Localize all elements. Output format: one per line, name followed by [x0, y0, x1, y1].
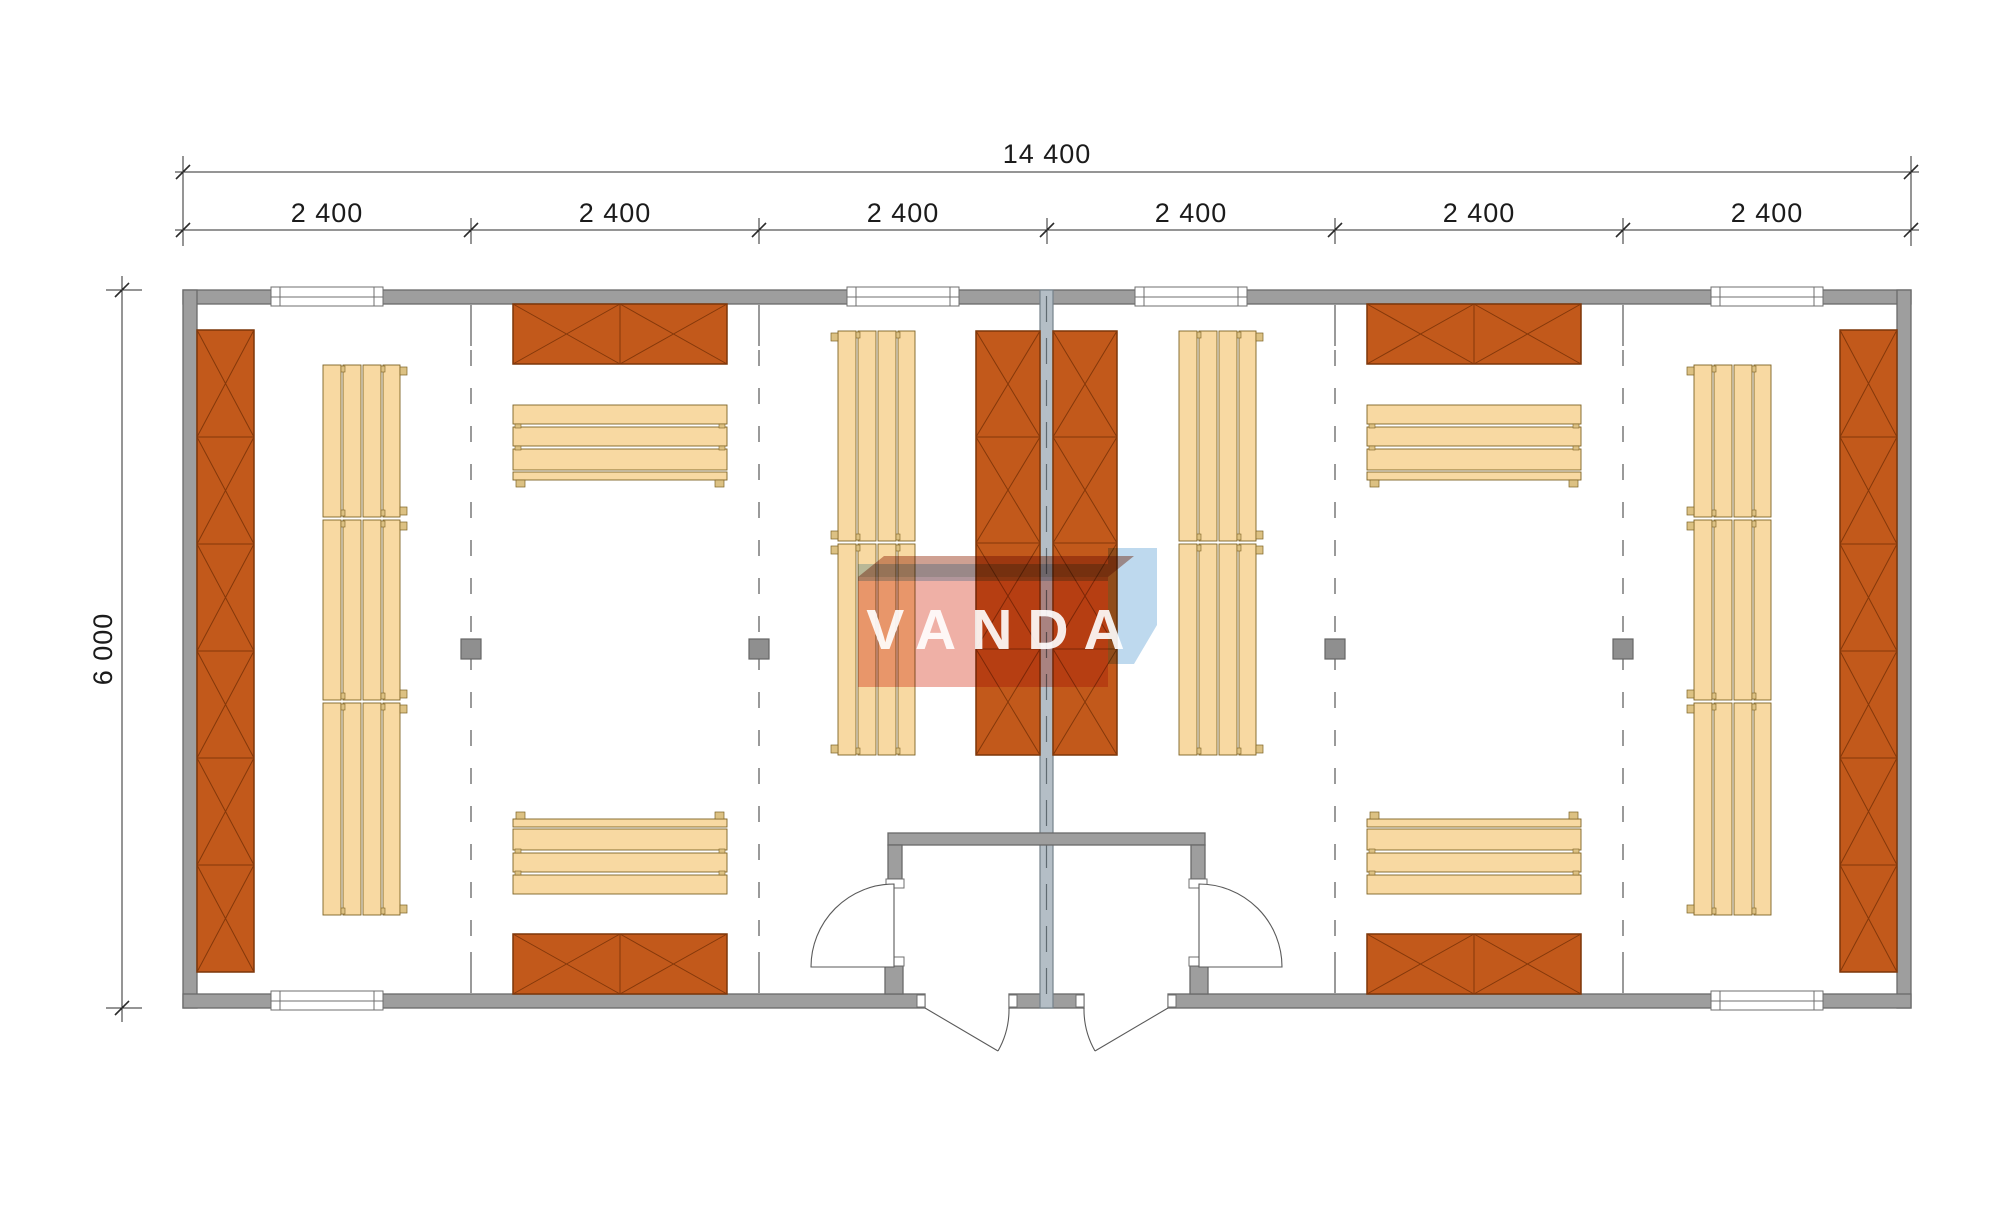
bench-foot	[1256, 745, 1263, 753]
bench-foot	[400, 507, 407, 515]
bench-foot	[831, 745, 838, 753]
bench-foot	[400, 690, 407, 698]
bench-foot	[516, 480, 525, 487]
wall-left	[183, 290, 197, 1008]
structural-post	[1325, 639, 1345, 659]
bench-foot	[715, 480, 724, 487]
window	[1711, 991, 1823, 1010]
watermark-red-top-shape	[858, 556, 1134, 577]
bench-foot	[1256, 531, 1263, 539]
bench-foot	[715, 812, 724, 819]
overall-width-label: 14 400	[1003, 139, 1092, 169]
wardrobe-cabinet	[197, 330, 254, 972]
bench-foot	[1687, 690, 1694, 698]
bench-vertical	[323, 365, 407, 915]
bench-vertical	[831, 331, 915, 755]
floor-plan-drawing: 14 400 2 400 2 400 2 400 2 400 2 400 2 4…	[0, 0, 2000, 1226]
bench-horizontal	[1367, 405, 1581, 487]
bench-foot	[1370, 812, 1379, 819]
bench-foot	[1687, 367, 1694, 375]
module-width-label-5: 2 400	[1443, 198, 1516, 228]
bench-foot	[1370, 480, 1379, 487]
bench-vertical	[1687, 365, 1771, 915]
vestibule-wall-stub	[1191, 845, 1205, 879]
bench-foot	[1687, 705, 1694, 713]
bench-foot	[831, 546, 838, 554]
wardrobe-cabinet	[1367, 934, 1581, 994]
wardrobe-cabinet	[976, 331, 1040, 755]
module-width-label-4: 2 400	[1155, 198, 1228, 228]
door-frame	[1076, 995, 1084, 1007]
structural-post	[749, 639, 769, 659]
window	[271, 287, 383, 306]
bench-foot	[400, 522, 407, 530]
watermark-text: VANDA	[866, 598, 1139, 662]
bench-foot	[1687, 507, 1694, 515]
bench-foot	[1569, 480, 1578, 487]
bench-horizontal	[513, 405, 727, 487]
bench-foot	[400, 905, 407, 913]
bench-foot	[1569, 812, 1578, 819]
window	[1135, 287, 1247, 306]
module-dimension-line	[175, 218, 1919, 244]
bench-vertical	[1179, 331, 1263, 755]
floor-plan-page: 14 400 2 400 2 400 2 400 2 400 2 400 2 4…	[0, 0, 2000, 1226]
window	[271, 991, 383, 1010]
wall-right	[1897, 290, 1911, 1008]
exterior-door-swing-left	[925, 1008, 1009, 1051]
exterior-door-swing-right	[1084, 1008, 1168, 1051]
door-frame	[1168, 995, 1176, 1007]
vestibule-wall	[888, 833, 1205, 845]
module-width-label-1: 2 400	[291, 198, 364, 228]
vestibule-wall-stub	[888, 845, 902, 879]
bench-foot	[400, 367, 407, 375]
bench-foot	[516, 812, 525, 819]
wardrobe-cabinet	[1840, 330, 1897, 972]
interior-door-swing-right	[1199, 884, 1282, 967]
bench-foot	[1256, 546, 1263, 554]
bench-horizontal	[1367, 812, 1581, 894]
door-pilaster	[1190, 966, 1208, 994]
bench-horizontal	[513, 812, 727, 894]
wardrobe-cabinet	[1367, 304, 1581, 364]
module-width-label-3: 2 400	[867, 198, 940, 228]
module-width-label-6: 2 400	[1731, 198, 1804, 228]
bench-foot	[1687, 905, 1694, 913]
door-frame	[917, 995, 925, 1007]
wardrobe-cabinet	[1053, 331, 1117, 755]
bench-foot	[831, 333, 838, 341]
structural-post	[1613, 639, 1633, 659]
window	[847, 287, 959, 306]
wardrobe-cabinet	[513, 934, 727, 994]
window	[1711, 287, 1823, 306]
bench-foot	[831, 531, 838, 539]
module-width-label-2: 2 400	[579, 198, 652, 228]
structural-post	[461, 639, 481, 659]
overall-depth-label: 6 000	[88, 613, 118, 686]
door-pilaster	[885, 966, 903, 994]
bench-foot	[1687, 522, 1694, 530]
door-frame	[1009, 995, 1017, 1007]
wardrobe-cabinet	[513, 304, 727, 364]
bench-foot	[1256, 333, 1263, 341]
interior-door-swing-left	[811, 884, 894, 967]
bench-foot	[400, 705, 407, 713]
